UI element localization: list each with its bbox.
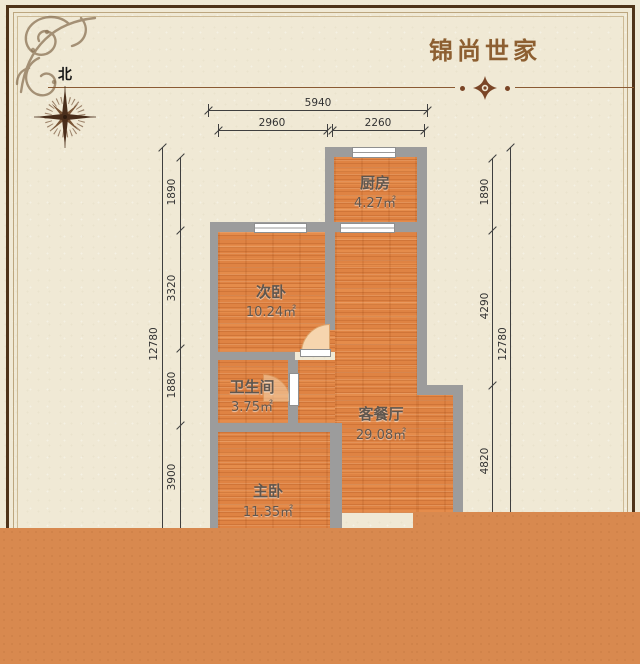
room-living-name: 客餐厅 (358, 403, 403, 424)
plan-title: 锦尚世家 (429, 31, 541, 66)
dim-line (332, 130, 424, 131)
dim-line (180, 157, 181, 533)
room-living-floor (298, 360, 335, 423)
dim-left-total: 12780 (148, 322, 160, 366)
dim-line (218, 130, 327, 131)
room-bathroom-name: 卫生间 (229, 376, 274, 397)
dim-left-seg4: 3900 (166, 455, 178, 499)
wall (210, 423, 342, 432)
dim-left-seg1: 1890 (166, 170, 178, 214)
window (254, 223, 307, 233)
dim-right-seg1: 1890 (479, 170, 491, 214)
dim-left-seg3: 1880 (166, 363, 178, 407)
dim-right-seg3: 4820 (479, 439, 491, 483)
dim-top-seg2: 2260 (365, 117, 392, 129)
dim-line (492, 158, 493, 513)
room-bathroom-area: 3.75㎡ (231, 396, 273, 415)
dim-line (208, 110, 427, 111)
wall (417, 147, 427, 395)
wall (325, 232, 335, 330)
wall (453, 395, 463, 513)
dim-top-total: 5940 (305, 97, 332, 109)
north-label: 北 (58, 64, 72, 84)
window (352, 147, 396, 158)
wall (210, 352, 295, 360)
room-bedroom2-name: 次卧 (256, 281, 286, 302)
dim-line (162, 147, 163, 533)
dim-right-seg2: 4290 (479, 284, 491, 328)
compass-rose-icon (33, 85, 97, 149)
bottom-orange-band (0, 528, 413, 664)
room-kitchen-name: 厨房 (360, 172, 390, 193)
room-kitchen-area: 4.27㎡ (354, 192, 396, 211)
dim-right-total: 12780 (497, 322, 509, 366)
room-living-floor (417, 395, 453, 513)
wall (330, 432, 342, 533)
door-leaf (300, 349, 331, 357)
header-divider (48, 87, 634, 88)
wall (210, 232, 218, 533)
wall (417, 385, 463, 395)
dim-line (510, 147, 511, 513)
window (340, 223, 395, 233)
room-master-name: 主卧 (253, 480, 283, 501)
room-master-area: 11.35㎡ (243, 501, 293, 520)
dim-top-seg1: 2960 (259, 117, 286, 129)
divider-ornament-icon (455, 75, 515, 101)
dim-left-seg2: 3320 (166, 266, 178, 310)
room-living-floor (335, 232, 417, 513)
wall (325, 157, 334, 222)
floorplan-page: 锦尚世家 北 (0, 0, 640, 664)
room-living-area: 29.08㎡ (356, 424, 406, 443)
room-bedroom2-area: 10.24㎡ (246, 301, 296, 320)
door-leaf (289, 373, 299, 406)
bottom-orange-band (413, 512, 640, 664)
